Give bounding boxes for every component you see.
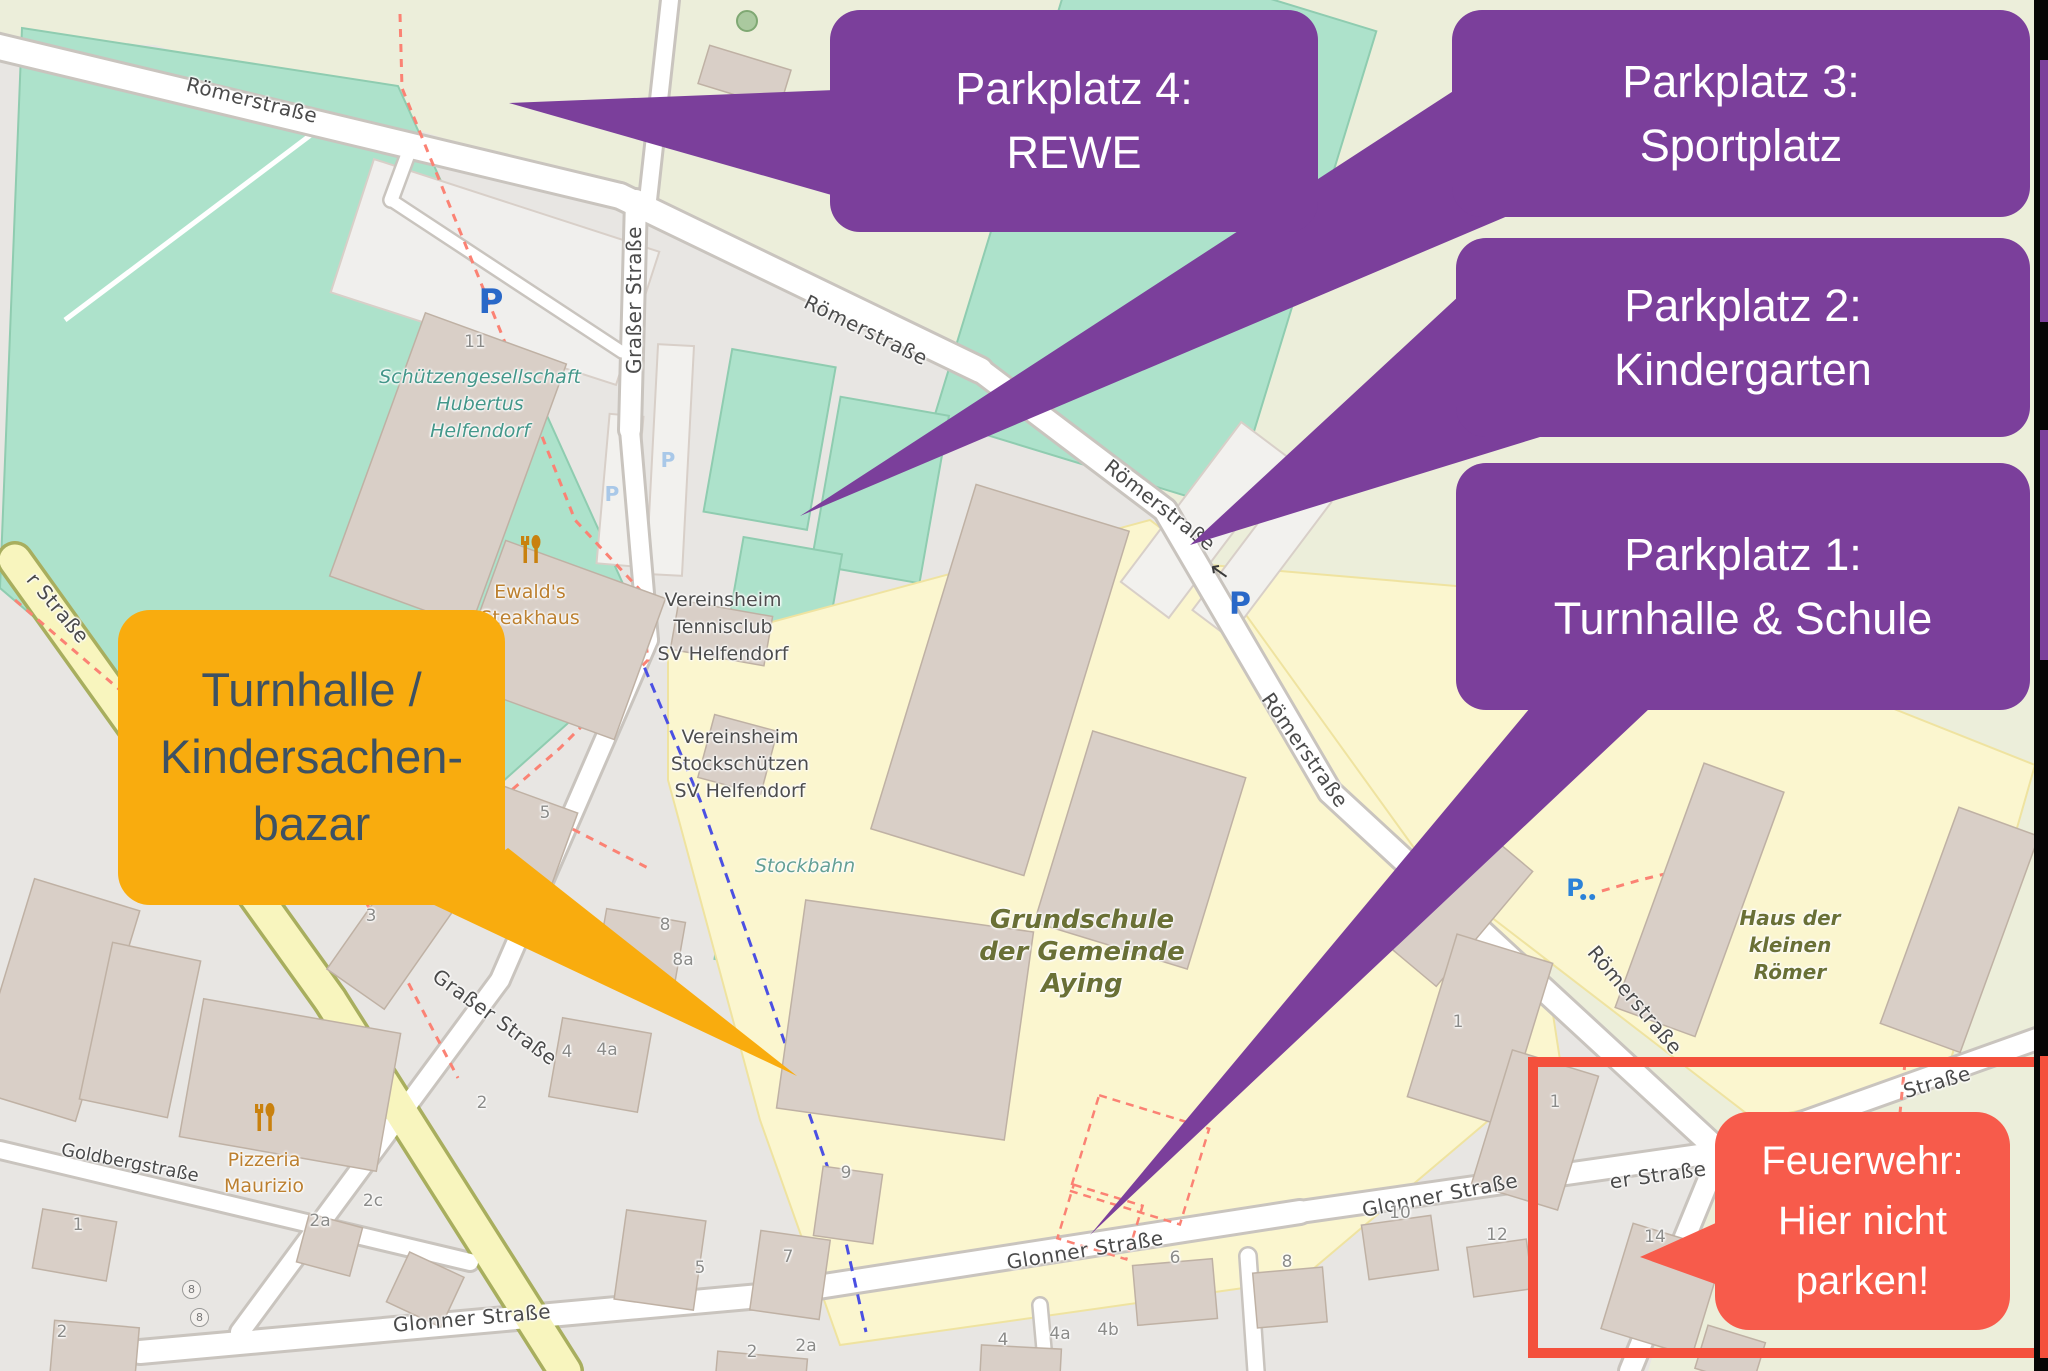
poi-schuetzengesellschaft: Hubertus	[436, 393, 523, 415]
bicycle-wheels-icon	[1580, 894, 1586, 900]
house-number: 1	[73, 1215, 84, 1235]
callout-parkplatz-4: Parkplatz 4: REWE	[830, 10, 1318, 232]
house-number: 2a	[309, 1211, 330, 1231]
poi-schuetzengesellschaft: Schützengesellschaft	[379, 366, 581, 388]
house-number-badge: 8	[182, 1280, 201, 1299]
callout-line: Hier nicht	[1778, 1191, 1947, 1251]
parking-icon: P	[479, 282, 504, 322]
house-number: 2c	[363, 1191, 383, 1211]
callout-line: Parkplatz 1:	[1624, 523, 1862, 587]
poi-grundschule: der Gemeinde	[979, 937, 1185, 967]
house-number: 2a	[795, 1336, 816, 1356]
callout-parkplatz-2: Parkplatz 2: Kindergarten	[1456, 238, 2030, 437]
house-number: 4a	[1049, 1324, 1070, 1344]
callout-line: Kindersachen-	[160, 724, 463, 791]
house-number: 8a	[672, 950, 693, 970]
house-number: 12	[1486, 1225, 1508, 1245]
callout-line: REWE	[1007, 121, 1142, 185]
house-number: 4a	[596, 1040, 617, 1060]
poi-pizzeria-maurizio: Maurizio	[224, 1175, 304, 1197]
poi-vereinsheim-tennisclub: Tennisclub	[673, 616, 772, 638]
callout-turnhalle: Turnhalle / Kindersachen- bazar	[118, 610, 505, 905]
poi-vereinsheim-tennisclub: Vereinsheim	[664, 589, 781, 611]
callout-parkplatz-1: Parkplatz 1: Turnhalle & Schule	[1456, 463, 2030, 710]
poi-stockbahn: Stockbahn	[755, 855, 855, 877]
callout-line: Sportplatz	[1640, 114, 1843, 178]
house-number: 3	[366, 906, 377, 926]
house-number: 8	[1282, 1252, 1293, 1272]
house-number: 2	[57, 1322, 68, 1342]
callout-line: Parkplatz 2:	[1624, 274, 1862, 338]
map-slide: Römerstraße Römerstraße Römerstraße Röme…	[0, 0, 2048, 1371]
poi-haus-der-kleinen-roemer: Römer	[1754, 960, 1826, 984]
poi-vereinsheim-tennisclub: SV Helfendorf	[658, 643, 789, 665]
poi-vereinsheim-stockschuetzen: Vereinsheim	[681, 726, 798, 748]
callout-line: Feuerwehr:	[1761, 1131, 1963, 1191]
callout-line: bazar	[253, 791, 371, 858]
house-number: 2	[477, 1093, 488, 1113]
screen-edge-purple-sliver	[2040, 430, 2048, 660]
screen-edge-purple-sliver	[2040, 60, 2048, 322]
house-number: 4	[998, 1330, 1009, 1350]
house-number: 4	[562, 1042, 573, 1062]
screen-edge-red-sliver	[2040, 1056, 2048, 1358]
house-number: 9	[841, 1163, 852, 1183]
poi-pizzeria-maurizio: Pizzeria	[228, 1149, 301, 1171]
callout-line: Turnhalle & Schule	[1554, 587, 1933, 651]
house-number: 11	[464, 332, 486, 352]
poi-vereinsheim-stockschuetzen: SV Helfendorf	[675, 780, 806, 802]
house-number: 6	[1170, 1248, 1181, 1268]
parking-icon: P	[1229, 587, 1251, 622]
street-label-grasser-strasse: Graßer Straße	[622, 226, 646, 374]
house-number: 10	[1389, 1203, 1411, 1223]
house-number: 8	[660, 915, 671, 935]
poi-schuetzengesellschaft: Helfendorf	[430, 420, 530, 442]
callout-line: parken!	[1796, 1251, 1929, 1311]
poi-grundschule: Aying	[1041, 969, 1122, 999]
poi-haus-der-kleinen-roemer: Haus der	[1739, 906, 1840, 930]
bicycle-parking-icon: P	[1566, 874, 1584, 902]
house-number: 7	[783, 1247, 794, 1267]
callout-feuerwehr: Feuerwehr: Hier nicht parken!	[1715, 1112, 2010, 1330]
callout-line: Turnhalle /	[201, 657, 421, 724]
house-number: 1	[1453, 1012, 1464, 1032]
callout-parkplatz-3: Parkplatz 3: Sportplatz	[1452, 10, 2030, 217]
callout-line: Parkplatz 3:	[1622, 50, 1860, 114]
poi-vereinsheim-stockschuetzen: Stockschützen	[671, 753, 809, 775]
house-number: 4b	[1097, 1320, 1119, 1340]
house-number: 5	[540, 803, 551, 823]
callout-line: Kindergarten	[1614, 338, 1872, 402]
poi-ewalds-steakhaus: Ewald's	[494, 581, 566, 603]
parking-icon: P	[661, 448, 676, 472]
house-number-badge: 8	[190, 1308, 209, 1327]
tree-icon	[737, 11, 757, 31]
callout-line: Parkplatz 4:	[955, 57, 1193, 121]
house-number: 5	[695, 1258, 706, 1278]
poi-haus-der-kleinen-roemer: kleinen	[1749, 933, 1832, 957]
parking-icon: P	[605, 482, 620, 506]
poi-grundschule: Grundschule	[990, 905, 1174, 935]
house-number: 2	[747, 1342, 758, 1362]
